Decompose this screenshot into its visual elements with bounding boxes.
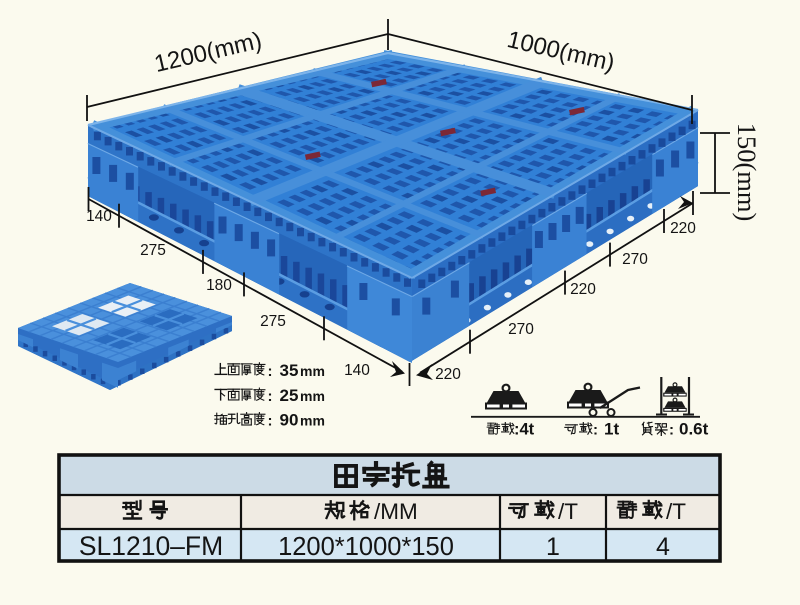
svg-text:1: 1 (546, 533, 560, 561)
svg-text:1t: 1t (604, 420, 619, 439)
svg-text::4t: :4t (514, 421, 535, 439)
svg-text:0.6t: 0.6t (679, 420, 709, 439)
svg-text:180: 180 (206, 277, 232, 294)
svg-text:90: 90 (280, 411, 299, 430)
svg-text:220: 220 (670, 220, 696, 237)
svg-text:/MM: /MM (374, 499, 418, 524)
svg-text:SL1210–FM: SL1210–FM (79, 531, 223, 561)
svg-text:140: 140 (344, 362, 370, 379)
svg-text:/T: /T (558, 499, 578, 524)
svg-text:270: 270 (508, 321, 534, 338)
svg-text:mm: mm (300, 388, 325, 404)
svg-text:mm: mm (300, 363, 325, 379)
svg-text:270: 270 (622, 251, 648, 268)
svg-text:25: 25 (280, 386, 299, 405)
svg-text::: : (268, 413, 273, 430)
svg-text:275: 275 (140, 242, 166, 259)
svg-text::: : (669, 422, 674, 439)
svg-text:220: 220 (435, 366, 461, 383)
svg-text:1200*1000*150: 1200*1000*150 (278, 533, 454, 561)
svg-text::: : (593, 422, 598, 439)
svg-text:275: 275 (260, 313, 286, 330)
svg-text:4: 4 (656, 533, 670, 561)
svg-text:140: 140 (86, 208, 112, 225)
svg-text:220: 220 (570, 281, 596, 298)
svg-text:35: 35 (280, 361, 299, 380)
svg-text::: : (268, 363, 273, 380)
svg-text:mm: mm (300, 413, 325, 429)
svg-text:/T: /T (666, 499, 686, 524)
svg-text:150(mm): 150(mm) (732, 123, 762, 222)
svg-text::: : (268, 388, 273, 405)
